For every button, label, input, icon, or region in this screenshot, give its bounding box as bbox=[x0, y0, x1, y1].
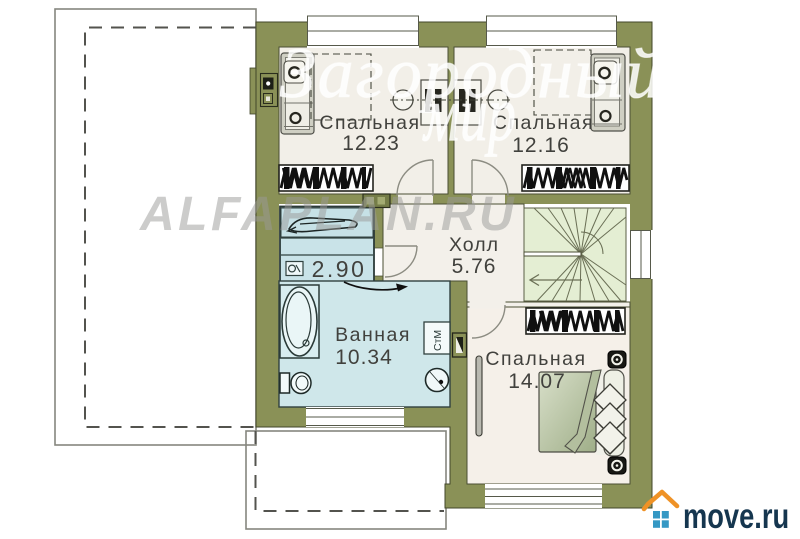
svg-text:2.90: 2.90 bbox=[312, 256, 367, 282]
svg-text:мир: мир bbox=[422, 70, 516, 157]
svg-text:СтМ: СтМ bbox=[432, 330, 444, 351]
svg-text:ALFAPLAN.RU: ALFAPLAN.RU bbox=[139, 188, 517, 241]
svg-text:14.07: 14.07 bbox=[508, 370, 566, 393]
svg-text:Спальная: Спальная bbox=[319, 112, 420, 134]
svg-text:Спальная: Спальная bbox=[485, 348, 586, 370]
svg-text:move.ru: move.ru bbox=[683, 497, 789, 536]
svg-text:12.16: 12.16 bbox=[512, 134, 570, 157]
svg-text:12.23: 12.23 bbox=[342, 132, 400, 155]
svg-text:Ванная: Ванная bbox=[335, 324, 411, 346]
svg-text:10.34: 10.34 bbox=[335, 346, 393, 369]
svg-text:5.76: 5.76 bbox=[452, 255, 497, 278]
